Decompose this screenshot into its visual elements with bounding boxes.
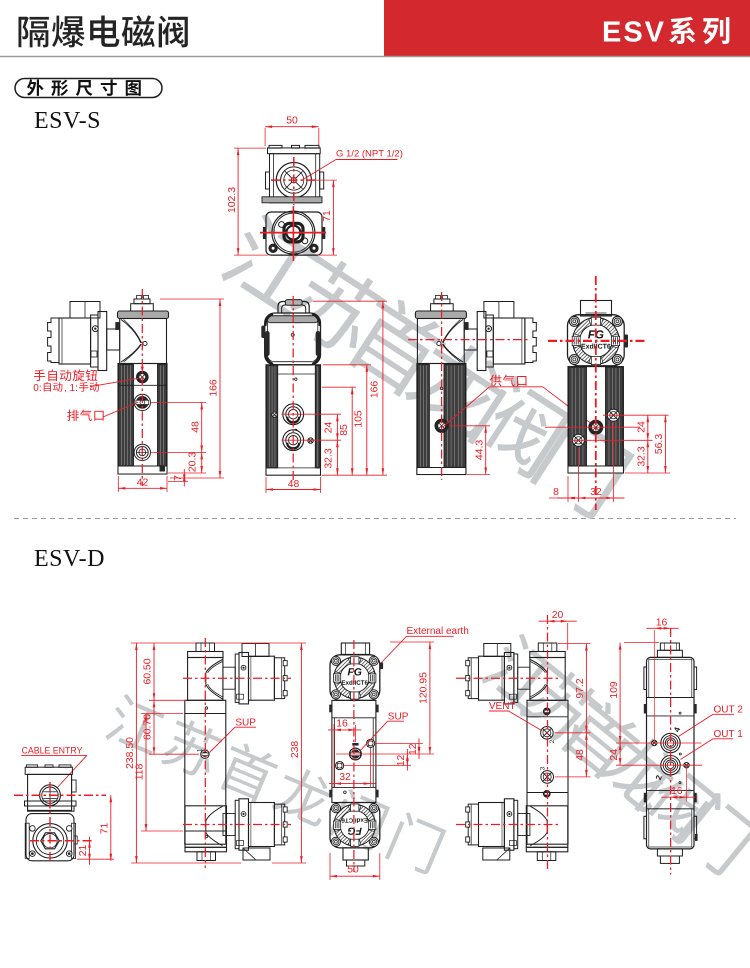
svg-text:166: 166 xyxy=(209,379,220,397)
svg-text:48: 48 xyxy=(575,749,586,761)
svg-text:97.2: 97.2 xyxy=(575,678,586,698)
svg-text:50: 50 xyxy=(347,865,359,876)
svg-text:0:: 0: xyxy=(33,383,41,394)
svg-text:50: 50 xyxy=(286,116,298,127)
svg-text:SUP: SUP xyxy=(388,711,409,722)
svg-text:ESV: ESV xyxy=(602,17,666,49)
svg-text:8: 8 xyxy=(553,487,559,498)
svg-text:56.3: 56.3 xyxy=(654,434,665,454)
svg-text:12: 12 xyxy=(396,755,407,767)
svg-text:32.3: 32.3 xyxy=(324,448,335,468)
svg-text:102.3: 102.3 xyxy=(227,187,238,213)
svg-text:External earth: External earth xyxy=(407,626,469,637)
svg-text:32: 32 xyxy=(590,487,602,498)
svg-text:238: 238 xyxy=(290,741,301,759)
svg-text:OUT 1: OUT 1 xyxy=(714,729,744,740)
svg-text:48: 48 xyxy=(288,479,300,490)
svg-text:42: 42 xyxy=(137,477,149,488)
svg-text:2: 2 xyxy=(549,739,556,743)
svg-text:120.95: 120.95 xyxy=(419,672,430,704)
svg-text:60.50: 60.50 xyxy=(143,658,154,684)
svg-text:12: 12 xyxy=(408,743,419,755)
svg-text:44.3: 44.3 xyxy=(474,440,485,460)
svg-text:24: 24 xyxy=(609,749,620,761)
svg-text:32.3: 32.3 xyxy=(637,446,648,466)
svg-text:OUT 2: OUT 2 xyxy=(714,704,744,715)
svg-text:71: 71 xyxy=(100,823,111,835)
svg-text:16: 16 xyxy=(656,617,668,628)
svg-text:20.3: 20.3 xyxy=(187,452,198,472)
svg-text:, 1:: , 1: xyxy=(64,383,78,394)
svg-text:ESV-S: ESV-S xyxy=(34,108,101,134)
svg-text:118: 118 xyxy=(135,764,146,781)
svg-text:21: 21 xyxy=(78,845,89,857)
svg-text:20: 20 xyxy=(552,610,564,621)
svg-text:109: 109 xyxy=(609,681,620,699)
svg-text:166: 166 xyxy=(370,381,381,399)
svg-text:16: 16 xyxy=(671,786,683,797)
svg-text:71: 71 xyxy=(322,210,333,222)
svg-text:105: 105 xyxy=(354,410,365,428)
svg-text:85: 85 xyxy=(339,424,350,436)
svg-text:24: 24 xyxy=(324,422,335,434)
svg-text:ESV-D: ESV-D xyxy=(34,546,105,572)
svg-text:CABLE ENTRY: CABLE ENTRY xyxy=(22,745,83,755)
svg-text:48: 48 xyxy=(190,421,201,433)
svg-text:3: 3 xyxy=(540,766,547,770)
svg-text:24: 24 xyxy=(637,421,648,433)
svg-text:7: 7 xyxy=(173,475,184,481)
svg-text:G 1/2 (NPT 1/2): G 1/2 (NPT 1/2) xyxy=(336,149,403,160)
svg-text:60.70: 60.70 xyxy=(143,714,154,740)
svg-text:16: 16 xyxy=(336,718,348,729)
svg-text:32: 32 xyxy=(339,772,351,783)
